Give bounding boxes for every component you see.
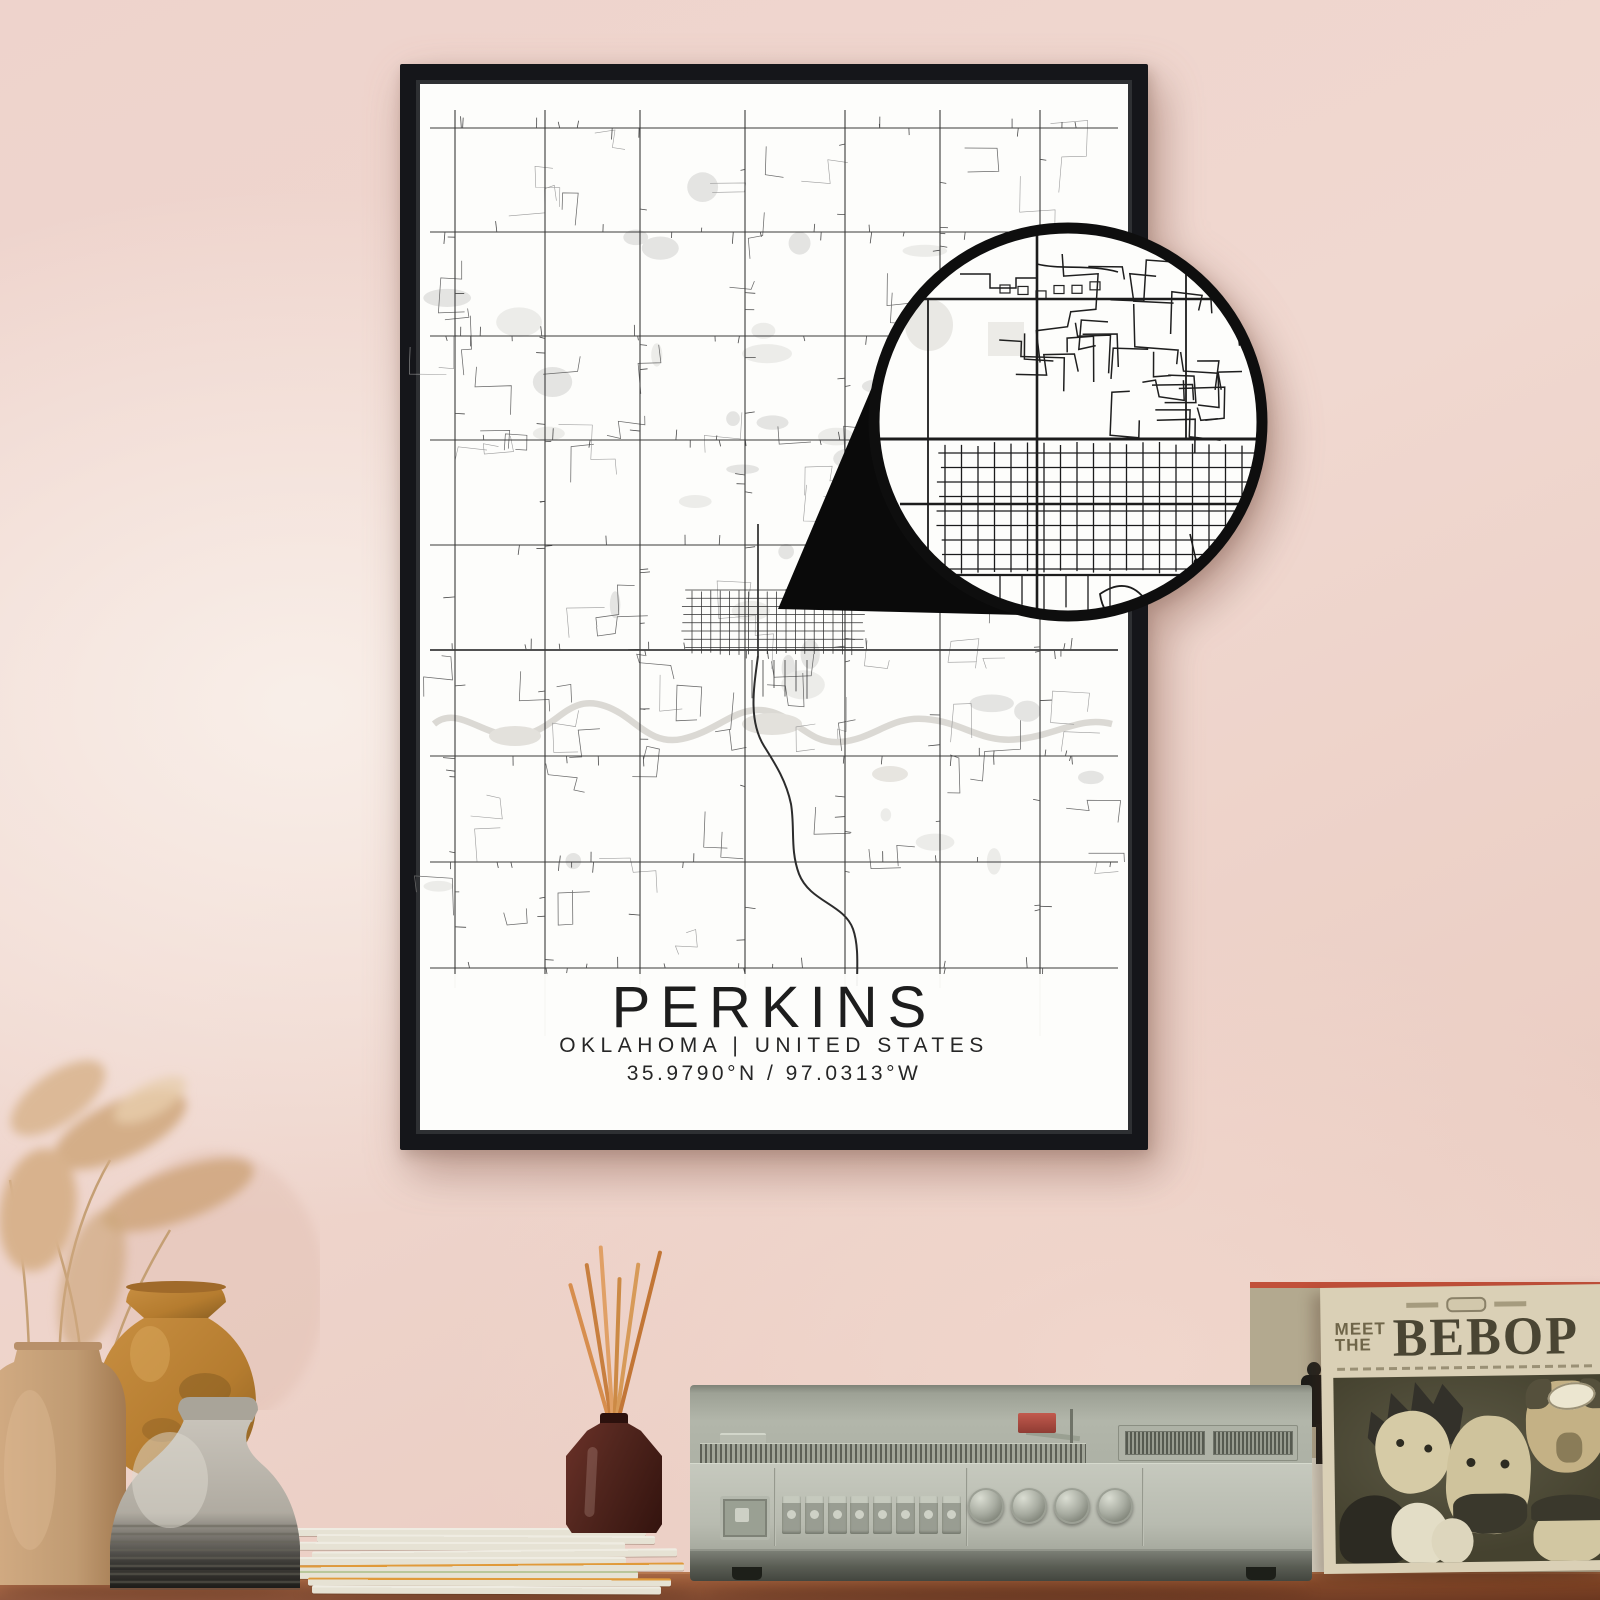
magazine <box>312 1585 661 1594</box>
record-sleeve: MEET THE BEBOP <box>1320 1284 1600 1574</box>
radio-shadow <box>700 1586 1315 1600</box>
cover-art-gloves <box>1431 1518 1474 1564</box>
panel-groove <box>1142 1468 1144 1546</box>
cover-art-eye <box>1500 1459 1509 1468</box>
cover-art-eye <box>1466 1458 1475 1467</box>
tonearm-cartridge <box>1018 1413 1056 1433</box>
room-scene: PERKINS OKLAHOMA | UNITED STATES 35.9790… <box>0 0 1600 1600</box>
panel-groove <box>774 1468 776 1546</box>
slider-track <box>1125 1431 1205 1455</box>
radio-key <box>805 1496 824 1534</box>
radio-key <box>850 1496 869 1534</box>
diffuser-bottle <box>566 1423 662 1533</box>
treble-knob <box>1054 1488 1090 1524</box>
radio-foot <box>732 1567 762 1580</box>
radio-base <box>690 1549 1312 1581</box>
cover-art-eye <box>1424 1445 1432 1453</box>
loupe-patch <box>988 322 1024 356</box>
radio-key <box>919 1496 938 1534</box>
cover-art-dog-snout <box>1556 1432 1582 1462</box>
platter-grille <box>700 1443 1086 1464</box>
tonearm <box>1018 1409 1082 1443</box>
cover-art-eye <box>1396 1439 1404 1447</box>
bass-knob <box>1011 1488 1047 1524</box>
radio-key <box>873 1496 892 1534</box>
radio-key <box>942 1496 961 1534</box>
sleeve-title: MEET THE BEBOP <box>1334 1312 1599 1368</box>
radio-key <box>828 1496 847 1534</box>
sleeve-cover-photo <box>1333 1374 1600 1564</box>
turntable-radio <box>690 1385 1312 1581</box>
poster-title: PERKINS <box>612 975 937 1040</box>
radio-foot <box>1246 1567 1276 1580</box>
preset-keys <box>782 1496 964 1536</box>
sleeve-title-the: THE <box>1335 1335 1372 1355</box>
volume-knob <box>968 1488 1004 1524</box>
sleeve-title-small: MEET THE <box>1334 1321 1386 1354</box>
vase-group <box>0 1270 340 1600</box>
poster-subtitle: OKLAHOMA | UNITED STATES <box>559 1034 989 1057</box>
slider-track <box>1213 1431 1293 1455</box>
radio-front-panel <box>690 1463 1312 1550</box>
radio-key <box>782 1496 801 1534</box>
tan-vase <box>0 1342 126 1585</box>
poster-coordinates: 35.9790°N / 97.0313°W <box>627 1062 922 1085</box>
power-button <box>720 1496 770 1540</box>
radio-key <box>896 1496 915 1534</box>
sleeve-title-main: BEBOP <box>1392 1305 1579 1369</box>
map-poster: PERKINS OKLAHOMA | UNITED STATES 35.9790… <box>400 64 1300 1150</box>
reed-diffuser <box>560 1255 680 1545</box>
cover-art-hair-ed <box>1531 1494 1600 1521</box>
slider-panel <box>1118 1425 1298 1461</box>
tuning-knob <box>1097 1488 1133 1524</box>
tonearm-post <box>1070 1409 1073 1443</box>
